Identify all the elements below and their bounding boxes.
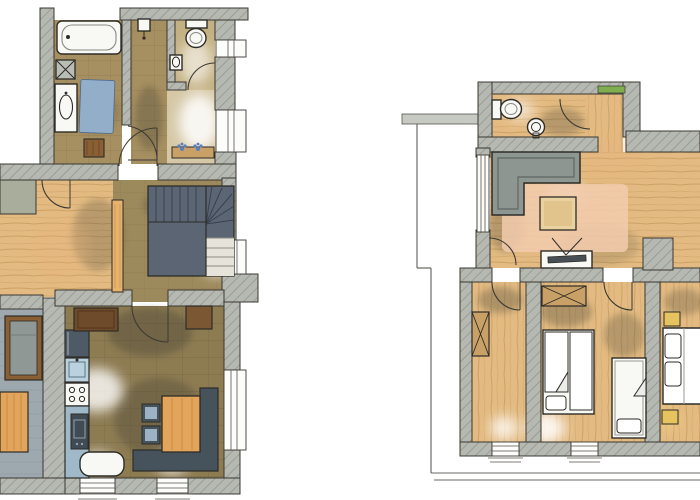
wall xyxy=(43,298,65,480)
railing-outline-bottom xyxy=(431,473,700,480)
wall xyxy=(224,302,240,370)
wall xyxy=(598,442,700,456)
entrance-window-2 xyxy=(216,110,246,152)
toilet xyxy=(186,20,207,48)
wall xyxy=(167,82,186,90)
bedroom2-wardrobe xyxy=(542,286,586,306)
wall xyxy=(519,442,571,456)
stove xyxy=(65,383,89,406)
sliding-panel xyxy=(112,200,123,292)
left-floor-plan xyxy=(0,8,258,499)
wall xyxy=(224,450,240,478)
wall xyxy=(478,82,492,140)
pillow xyxy=(617,419,641,433)
duvet-right xyxy=(570,332,592,410)
bathtub xyxy=(57,21,121,54)
nightstand xyxy=(664,312,680,326)
chimney-block xyxy=(643,238,673,270)
wood-stool xyxy=(84,139,104,157)
entrance-window-1 xyxy=(216,40,246,57)
bath-mat xyxy=(79,79,115,133)
wall xyxy=(460,268,492,282)
wall xyxy=(65,478,80,494)
sideboard-right xyxy=(186,306,212,329)
kitchen-window-1 xyxy=(76,478,119,499)
hand-basin xyxy=(170,55,182,70)
parapet xyxy=(402,114,478,124)
wall xyxy=(0,478,70,494)
wall xyxy=(0,164,118,180)
floor-plan-drawing xyxy=(0,0,700,500)
right-floor-plan xyxy=(402,82,700,480)
winder-staircase xyxy=(148,186,234,276)
washing-machine xyxy=(56,60,75,79)
sideboard-left xyxy=(74,308,118,331)
pillow xyxy=(546,396,566,410)
wall xyxy=(215,20,235,40)
wall xyxy=(645,282,660,442)
wall xyxy=(115,478,157,494)
double-bed-bedroom2 xyxy=(543,330,594,414)
wall xyxy=(526,282,541,442)
wall xyxy=(168,290,224,306)
nightstand xyxy=(662,410,678,424)
cot xyxy=(612,358,646,438)
coffee-table xyxy=(540,197,576,230)
balcony-glass-door xyxy=(477,155,489,232)
garden-table xyxy=(0,392,28,452)
toilet xyxy=(492,100,522,120)
sink-cabinet xyxy=(65,358,89,382)
wall xyxy=(460,442,492,456)
kitchen-window-2 xyxy=(153,478,192,499)
pillow xyxy=(665,334,681,358)
kitchen-side-window xyxy=(224,370,246,450)
floor-plan-canvas xyxy=(0,0,700,500)
wall xyxy=(623,82,640,137)
oven xyxy=(71,414,88,449)
bedroom1-wardrobe xyxy=(472,312,489,356)
wall xyxy=(0,295,43,309)
chair xyxy=(142,426,160,444)
green-window-sill xyxy=(598,86,625,93)
wall xyxy=(460,268,472,456)
wall xyxy=(626,131,700,152)
wall xyxy=(188,478,240,494)
wall xyxy=(122,20,131,125)
bedroom2-window xyxy=(567,442,602,462)
fridge xyxy=(65,330,89,357)
wall xyxy=(167,20,175,88)
wall xyxy=(215,57,235,110)
wall xyxy=(120,8,248,20)
wall xyxy=(40,8,54,168)
pillow xyxy=(665,362,681,386)
dining-table xyxy=(162,396,200,452)
wall xyxy=(520,268,603,282)
wall xyxy=(222,274,258,302)
lounger xyxy=(5,316,42,380)
railing-outline xyxy=(417,124,431,473)
wall xyxy=(478,137,598,152)
upper-terrace-piece xyxy=(0,180,36,214)
vanity-sink xyxy=(55,84,77,132)
window-bench xyxy=(80,452,124,476)
chair xyxy=(142,404,160,422)
bedroom1-window xyxy=(488,442,523,462)
wall xyxy=(215,152,236,164)
